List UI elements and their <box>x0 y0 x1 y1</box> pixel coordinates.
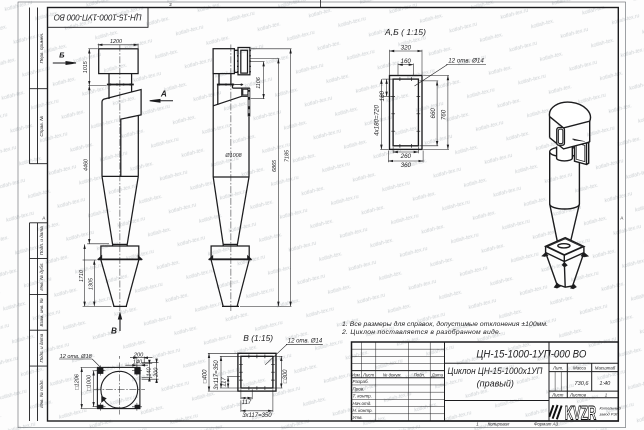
svg-text:Справ. №: Справ. № <box>39 116 44 137</box>
svg-text:ЦН-15-1000-1УП-000 ВО: ЦН-15-1000-1УП-000 ВО <box>54 13 142 22</box>
svg-text:140: 140 <box>133 360 143 366</box>
svg-text:В: В <box>111 327 117 336</box>
svg-text:Пров.: Пров. <box>353 386 365 391</box>
svg-text:Котельный: Котельный <box>600 406 622 411</box>
svg-text:(правый): (правый) <box>477 379 514 389</box>
svg-text:117: 117 <box>222 377 228 387</box>
svg-text:Инв. № дубл.: Инв. № дубл. <box>39 262 44 290</box>
svg-text:Нач.отд.: Нач.отд. <box>353 401 372 406</box>
svg-text:Масса: Масса <box>573 365 587 370</box>
svg-text:А: А <box>42 216 45 221</box>
svg-text:№ докум.: № докум. <box>383 372 402 377</box>
svg-text:Масштаб: Масштаб <box>595 365 616 370</box>
svg-text:320: 320 <box>401 44 412 51</box>
svg-text:4х180=720: 4х180=720 <box>373 105 380 136</box>
svg-text:7185: 7185 <box>284 149 290 162</box>
svg-text:Лист: Лист <box>551 392 564 397</box>
svg-text:В (1:15): В (1:15) <box>243 333 273 343</box>
svg-text:730,6: 730,6 <box>575 381 590 387</box>
svg-text:12 отв. Ø14: 12 отв. Ø14 <box>288 339 323 345</box>
svg-text:Листов: Листов <box>569 392 587 397</box>
svg-text:3х117=350: 3х117=350 <box>242 413 272 419</box>
svg-text:1200: 1200 <box>110 39 122 45</box>
svg-text:4460: 4460 <box>84 159 90 171</box>
svg-text:Циклон ЦН-15-1000х1УП: Циклон ЦН-15-1000х1УП <box>448 366 543 376</box>
svg-text:Утв.: Утв. <box>353 415 363 420</box>
svg-text:260: 260 <box>400 153 412 160</box>
svg-text:Лист: Лист <box>362 372 374 377</box>
svg-text:1305: 1305 <box>89 277 95 290</box>
svg-text:Т. контр.: Т. контр. <box>353 394 372 399</box>
svg-text:Подп. и дата: Подп. и дата <box>39 226 44 255</box>
svg-text:140: 140 <box>146 366 152 376</box>
svg-text:200: 200 <box>154 367 160 378</box>
svg-text:завод РЭП: завод РЭП <box>599 412 620 417</box>
svg-text:Разраб.: Разраб. <box>353 379 369 384</box>
svg-text:Лит.: Лит. <box>552 365 563 370</box>
svg-text:□400: □400 <box>202 369 208 383</box>
svg-text:Перв. примен.: Перв. примен. <box>39 33 44 64</box>
svg-text:KVZR: KVZR <box>565 402 597 424</box>
svg-text:12 отв. Ø14: 12 отв. Ø14 <box>448 58 484 65</box>
svg-text:2: 2 <box>169 2 172 7</box>
svg-text:Инв. № подл.: Инв. № подл. <box>39 379 44 408</box>
svg-text:Изм.: Изм. <box>352 372 361 377</box>
svg-text:1. Все размеры для справок, до: 1. Все размеры для справок, допустимые о… <box>342 320 548 328</box>
svg-text:Б: Б <box>59 51 65 60</box>
svg-text:□1000: □1000 <box>86 374 92 391</box>
svg-text:200: 200 <box>133 353 144 359</box>
svg-text:660: 660 <box>430 108 437 119</box>
svg-text:1710: 1710 <box>79 270 85 282</box>
svg-text:117: 117 <box>242 400 252 406</box>
svg-text:Подп. и дата: Подп. и дата <box>39 333 44 362</box>
svg-text:180: 180 <box>379 90 386 101</box>
svg-text:160: 160 <box>401 58 412 65</box>
svg-text:А: А <box>160 89 167 98</box>
svg-text:Копировал: Копировал <box>488 422 510 427</box>
svg-text:1106: 1106 <box>256 77 262 89</box>
svg-text:Подп.: Подп. <box>414 372 425 377</box>
svg-text:А: А <box>620 216 623 221</box>
svg-text:А,Б ( 1:15): А,Б ( 1:15) <box>384 27 426 37</box>
svg-text:Ø1008: Ø1008 <box>224 153 241 159</box>
svg-text:ЦН-15-1000-1УП-000 ВО: ЦН-15-1000-1УП-000 ВО <box>476 349 586 361</box>
svg-text:Дата: Дата <box>431 372 444 377</box>
svg-text:1015: 1015 <box>83 60 89 73</box>
svg-text:360: 360 <box>401 162 412 169</box>
svg-text:12 отв. Ø18: 12 отв. Ø18 <box>60 354 93 360</box>
svg-text:1:40: 1:40 <box>599 381 611 387</box>
svg-text:760: 760 <box>441 109 448 120</box>
svg-text:2. Циклон поставляется в разоб: 2. Циклон поставляется в разобранном вид… <box>341 328 501 336</box>
svg-text:□300: □300 <box>283 369 289 383</box>
svg-text:Взам. инв. №: Взам. инв. № <box>39 298 44 326</box>
svg-text:Н. контр.: Н. контр. <box>353 408 373 413</box>
svg-text:□1206: □1206 <box>75 373 81 390</box>
svg-text:6865: 6865 <box>272 159 278 172</box>
svg-text:3х117=350: 3х117=350 <box>214 360 220 390</box>
svg-text:Формат А3: Формат А3 <box>534 422 559 427</box>
